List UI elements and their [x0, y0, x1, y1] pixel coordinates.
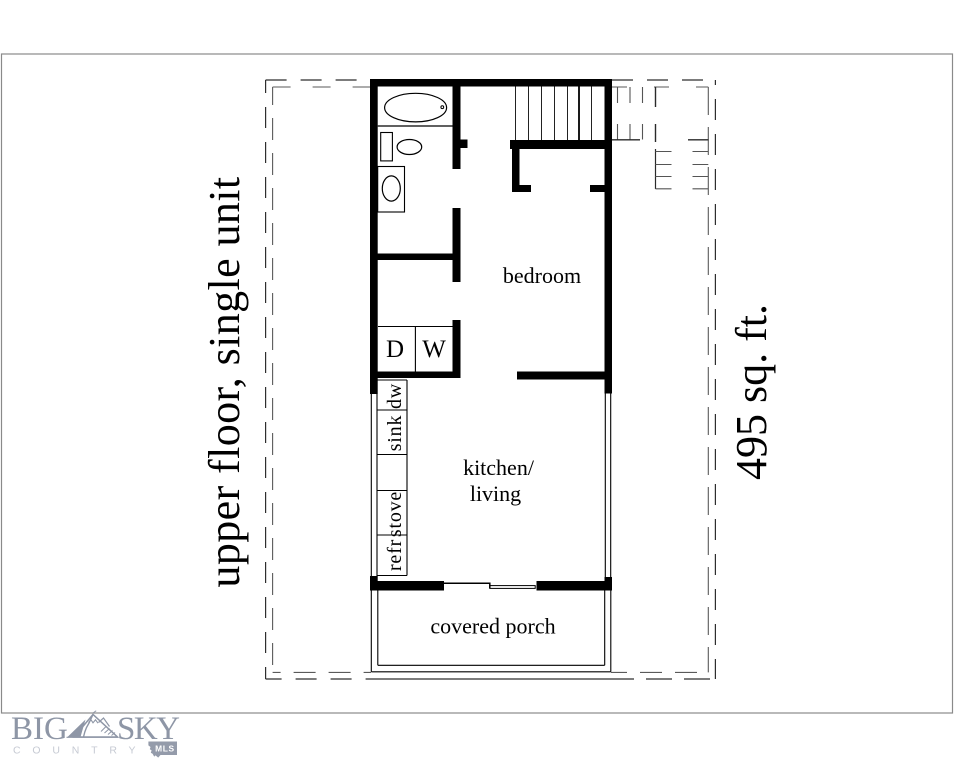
svg-text:kitchen/: kitchen/: [463, 455, 535, 480]
svg-text:495 sq. ft.: 495 sq. ft.: [727, 304, 776, 480]
svg-text:upper floor, single unit: upper floor, single unit: [200, 176, 249, 587]
svg-text:sink: sink: [384, 415, 406, 452]
svg-text:BIG: BIG: [11, 711, 68, 747]
svg-text:covered porch: covered porch: [430, 614, 555, 639]
svg-text:MLS: MLS: [155, 743, 174, 753]
svg-text:COUNTRY: COUNTRY: [13, 745, 147, 757]
svg-text:living: living: [470, 481, 521, 506]
svg-text:refr: refr: [384, 539, 406, 571]
svg-text:stove: stove: [384, 491, 406, 537]
svg-text:W: W: [422, 336, 446, 363]
svg-text:bedroom: bedroom: [503, 263, 581, 288]
svg-text:D: D: [386, 336, 404, 363]
svg-text:dw: dw: [384, 383, 406, 409]
